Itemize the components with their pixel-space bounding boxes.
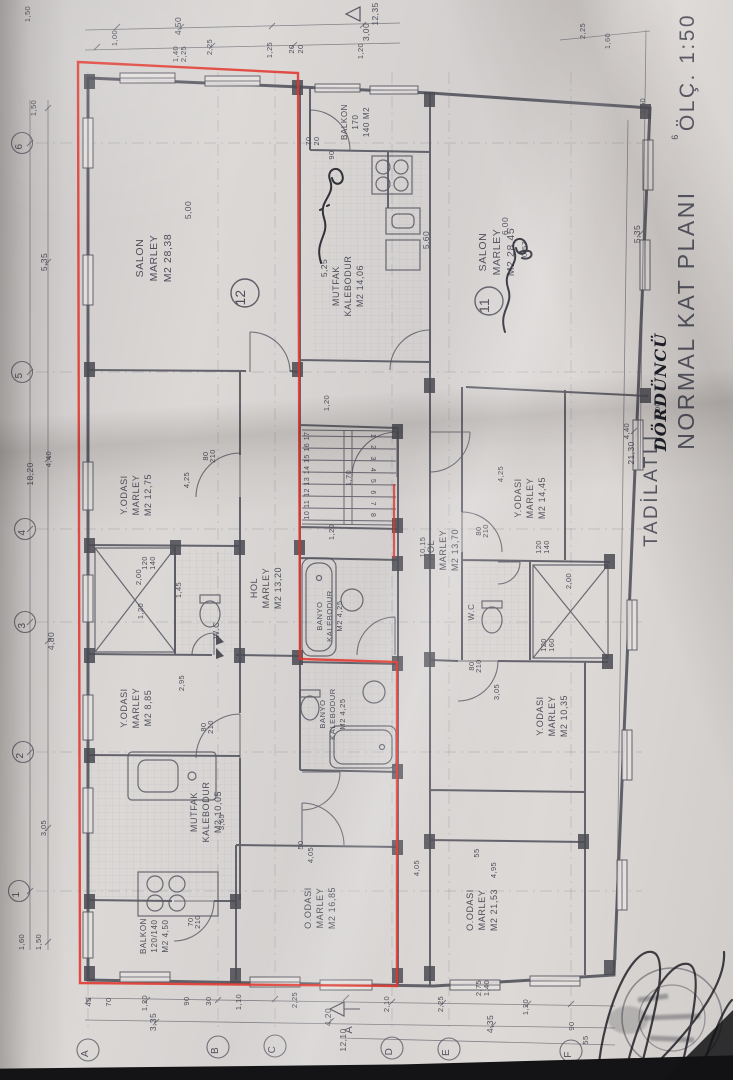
axis-label: B: [210, 1047, 221, 1054]
dimension-label: 2,25: [578, 23, 587, 39]
structural-column: [170, 540, 181, 555]
structural-column: [230, 894, 241, 909]
room-label: BALKON170140 M2: [340, 104, 371, 140]
structural-column: [424, 834, 435, 849]
dimension-label: 4,25: [182, 472, 191, 488]
dimension-label: 1,50: [23, 6, 32, 22]
stair-number: 8: [369, 513, 376, 517]
dimension-label: 5,35: [39, 253, 49, 271]
axis-label: F: [563, 1051, 574, 1058]
structural-column: [424, 652, 435, 667]
dimension-label: 4,25: [496, 466, 505, 482]
structural-column: [84, 538, 95, 553]
dimension-label: 3,05: [492, 684, 501, 700]
dimension-label: 3,05: [39, 820, 48, 836]
structural-column: [604, 960, 615, 975]
dimension-tick: [343, 995, 349, 1001]
apartment-number: 12: [233, 290, 248, 306]
dimension-label: 12,10: [338, 1028, 348, 1051]
stair-number: 3: [369, 456, 376, 460]
axis-label: 6: [14, 143, 25, 149]
dimension-label: 1,40: [171, 46, 180, 62]
stair-number: 17: [304, 432, 311, 441]
dimension-label: 4,95: [489, 862, 498, 878]
axis-label: 1: [11, 891, 22, 897]
title-handwritten-floor: DÖRDÜNCÜ: [650, 333, 670, 452]
dimension-label: 30: [204, 996, 213, 1005]
structural-column: [424, 92, 435, 107]
structural-column: [424, 966, 435, 981]
dimension-label: 1,40: [482, 980, 491, 996]
room-label: Y.ODASIMARLEYM2 12,75: [119, 474, 153, 516]
room-label: O.ODASIMARLEYM2 21,53: [465, 889, 499, 931]
room-label: HOLMARLEYM2 13,20: [249, 567, 283, 609]
dimension-label: 5,35: [632, 225, 642, 243]
title-scale: ÖLÇ. 1:50: [676, 13, 699, 131]
dimension-label: 2,00: [134, 569, 143, 585]
dimension-label: 12,35: [370, 2, 380, 25]
dimension-label: 4,20: [323, 1008, 333, 1026]
dimension-label: 4,40: [44, 451, 53, 467]
dimension-label: 3,65: [217, 814, 226, 830]
dimension-tick: [94, 44, 100, 50]
dimension-label: 2,25: [290, 992, 299, 1008]
structural-column: [292, 650, 303, 665]
room-label: Y.ODASIMARLEYM2 10,35: [535, 695, 569, 737]
structural-column: [640, 388, 651, 403]
axis-label: D: [384, 1048, 395, 1056]
dimension-label: 1,45: [174, 582, 183, 598]
dimension-label: 2,25: [179, 46, 188, 62]
stair-number: 11: [304, 500, 311, 508]
stair-number: 15: [304, 454, 311, 463]
axis-label: 5: [14, 372, 25, 378]
structural-column: [234, 648, 245, 663]
axis-label: 3: [17, 622, 28, 628]
structural-column: [84, 74, 95, 89]
dimension-label: 1,60: [17, 934, 26, 950]
dimension-label: 6: [670, 134, 680, 139]
dimension-label: 5,60: [421, 231, 431, 249]
structural-column: [604, 554, 615, 569]
axis-label: 2: [15, 752, 26, 758]
dimension-label: 4,50: [173, 17, 183, 35]
structural-column: [602, 654, 613, 669]
dimension-label: 6,00: [500, 217, 510, 235]
dimension-label: 20: [287, 44, 296, 53]
dimension-label: 90: [327, 150, 336, 159]
dimension-label: 160: [547, 638, 556, 652]
structural-column: [234, 540, 245, 555]
dimension-label: 18,20: [25, 462, 35, 485]
structural-column: [392, 556, 403, 571]
dimension-label: 45: [84, 997, 93, 1006]
dimension-label: 1,70: [344, 470, 353, 486]
floor-plan-drawing: 171615141312111012345678: [0, 0, 733, 1080]
dimension-label: 1,25: [265, 42, 274, 58]
structural-column: [84, 362, 95, 377]
dimension-label: 70: [104, 997, 113, 1006]
structural-column: [84, 648, 95, 663]
dimension-label: 1,00: [110, 30, 119, 46]
structural-column: [84, 748, 95, 763]
dimension-label: 210: [193, 915, 202, 929]
dimension-label: 2,25: [436, 996, 445, 1012]
dimension-label: 2,10: [382, 996, 391, 1012]
dimension-label: 4,80: [46, 632, 56, 650]
dimension-label: 50: [296, 840, 305, 849]
axis-label: 4: [17, 529, 28, 535]
stair-number: 13: [304, 477, 311, 486]
stair-number: 14: [304, 466, 311, 475]
dimension-label: 210: [474, 659, 483, 673]
dimension-label: 10,15: [418, 537, 427, 558]
dimension-label: 1,50: [638, 98, 647, 114]
dimension-label: 2,00: [564, 573, 573, 589]
dimension-label: 20: [296, 44, 305, 53]
structural-column: [230, 968, 241, 983]
stair-number: 2: [369, 445, 376, 449]
apartment-number: 11: [477, 298, 492, 313]
dimension-label: 1,50: [29, 100, 38, 116]
dimension-label: 1,20: [322, 395, 331, 411]
dimension-label: 1,20: [327, 524, 336, 540]
room-label: BALKON120/140M2 4,50: [139, 918, 170, 954]
dimension-label: 20: [312, 136, 321, 145]
dimension-label: 140: [542, 540, 551, 554]
room-label: SALONMARLEYM2 28,38: [134, 234, 174, 283]
dimension-label: 1,20: [136, 603, 145, 619]
dimension-label: 1,50: [34, 934, 43, 950]
structural-column: [392, 424, 403, 439]
dimension-label: 5,00: [183, 201, 193, 219]
dimension-label: 4,05: [412, 860, 421, 876]
room-label: W.C: [212, 622, 221, 639]
structural-column: [84, 894, 95, 909]
dimension-label: 55: [581, 1035, 590, 1044]
structural-column: [84, 966, 95, 981]
title-main: NORMAL KAT PLANI: [673, 190, 699, 449]
dimension-label: 90: [182, 996, 191, 1005]
room-label: Y.ODASIMARLEYM2 8,85: [119, 688, 153, 729]
dimension-label: 55: [472, 848, 481, 857]
dimension-label: 1,10: [234, 994, 243, 1010]
axis-label: C: [267, 1046, 278, 1054]
stair-number: 10: [304, 511, 311, 520]
room-label: W.C: [467, 604, 476, 621]
dimension-label: 3,35: [148, 1013, 158, 1031]
stair-number: 4: [369, 468, 376, 472]
axis-label: E: [441, 1049, 452, 1056]
dimension-label: 90: [567, 1021, 576, 1030]
dimension-label: 2,95: [177, 675, 186, 691]
dimension-label: 4,35: [485, 1015, 495, 1033]
dimension-label: 140: [148, 556, 157, 570]
axis-label: A: [80, 1050, 91, 1057]
dimension-label: 1,60: [603, 33, 612, 49]
dimension-label: 210: [206, 720, 215, 734]
dimension-label: 21,30: [626, 441, 636, 464]
stair-number: 5: [369, 479, 376, 483]
structural-column: [292, 362, 303, 377]
stair-number: 6: [369, 490, 376, 494]
stair-number: 7: [369, 502, 376, 506]
dimension-label: 4,05: [306, 847, 315, 863]
floor-plan-photo: { "title": {"prefix":"TADİLATLI","handwr…: [0, 0, 733, 1080]
room-label: Y.ODASIMARLEYM2 14,45: [513, 477, 547, 519]
stair-number: 12: [304, 488, 311, 497]
structural-column: [578, 834, 589, 849]
room-label: O.ODASIMARLEYM2 16,85: [303, 887, 337, 929]
stair-number: 16: [304, 443, 311, 452]
dimension-label: 1,20: [140, 995, 149, 1011]
dimension-label: 2,25: [205, 39, 214, 55]
dimension-label: 1,20: [356, 43, 365, 59]
dimension-label: 1,20: [521, 999, 530, 1015]
dimension-label: 4,40: [622, 423, 631, 439]
dimension-label: 210: [208, 449, 217, 463]
structural-column: [424, 378, 435, 393]
dimension-label: 210: [481, 524, 490, 538]
